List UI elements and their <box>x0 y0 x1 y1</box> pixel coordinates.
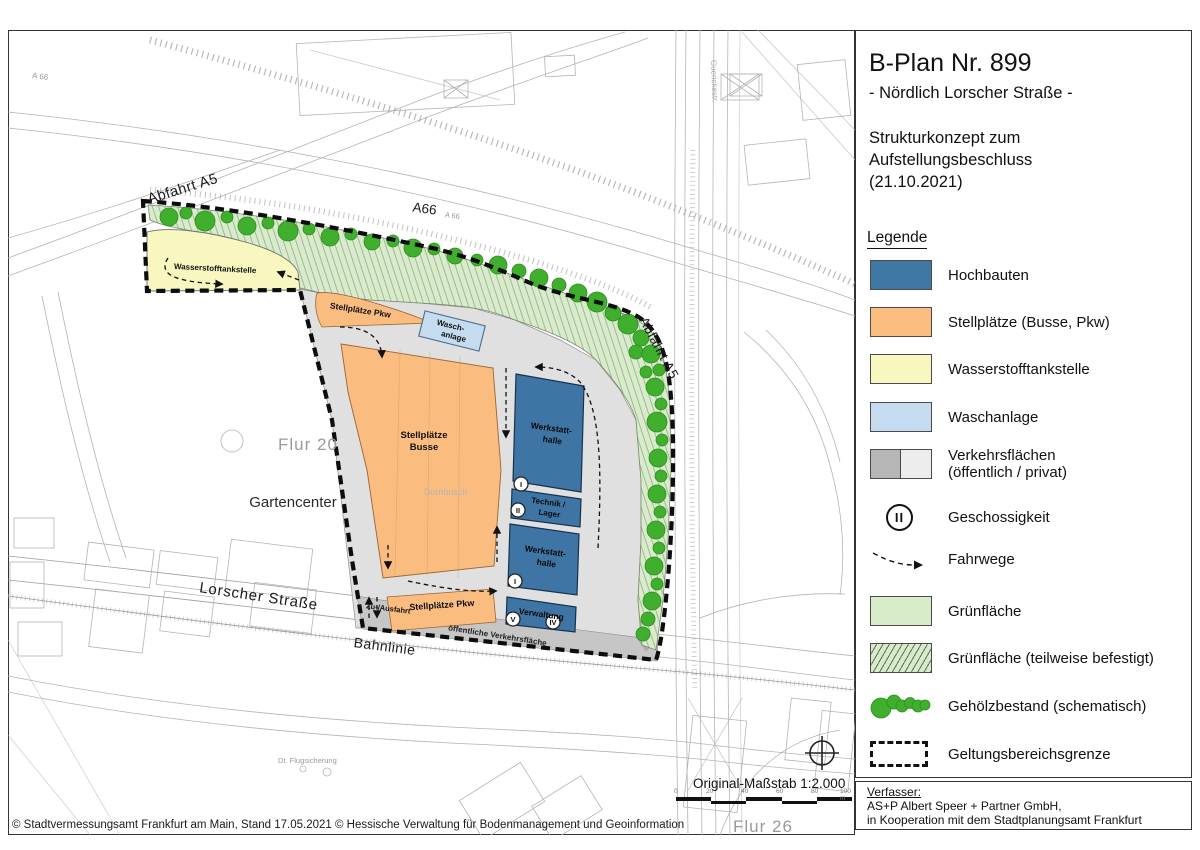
waschanlage-swatch <box>870 402 932 432</box>
legend-item-waschanlage: Waschanlage <box>870 400 1185 434</box>
scale-bar: 0 20 40 60 80 100 m <box>676 797 852 804</box>
plan-sheet: I II I V IV Abfahrt A5 A66 A 66 A 66 Abf… <box>0 0 1200 850</box>
legend-item-label: Geltungsbereichsgrenze <box>948 746 1111 763</box>
label-bahnlinie: Bahnlinie <box>353 634 417 658</box>
legend-item-label: Gehölzbestand (schematisch) <box>948 698 1146 715</box>
plan-description-line: Aufstellungsbeschluss <box>869 151 1032 170</box>
label-gartencenter: Gartencenter <box>249 494 337 511</box>
label-guerickestr: Guerickestr. <box>709 60 719 103</box>
legend-item-fahrwege: Fahrwege <box>870 542 1185 576</box>
label-flugsicherung: Dt. Flugsicherung <box>278 756 337 765</box>
floor-marker-label: V <box>510 615 515 624</box>
label-flur-20: Flur 20 <box>278 435 338 454</box>
label-flur-26: Flur 26 <box>733 817 793 835</box>
label-stellplaetze-busse-2: Busse <box>410 442 439 453</box>
legend-heading: Legende <box>867 229 927 249</box>
wasserstoff-swatch <box>870 354 932 384</box>
author-line: in Kooperation mit dem Stadtplanungsamt … <box>867 813 1142 827</box>
site-plan-map: I II I V IV Abfahrt A5 A66 A 66 A 66 Abf… <box>8 30 855 835</box>
author-line: AS+P Albert Speer + Partner GmbH, <box>867 799 1062 813</box>
verkehrsflaechen-swatch <box>870 449 932 479</box>
building-werkstatthalle-1 <box>513 374 584 492</box>
plan-subtitle: - Nördlich Lorscher Straße - <box>869 84 1073 103</box>
floor-marker-label: I <box>520 480 522 489</box>
plan-description-line: Strukturkonzept zum <box>869 129 1020 148</box>
legend-item-verkehrsflaechen: Verkehrsflächen (öffentlich / privat) <box>870 447 1185 481</box>
legend-item-label: Grünfläche <box>948 603 1021 620</box>
legend-item-hochbauten: Hochbauten <box>870 258 1185 292</box>
floor-marker-label: II <box>516 506 520 515</box>
label-abfahrt-a5-left: Abfahrt A5 <box>146 171 220 208</box>
legend-item-geschossigkeit: II Geschossigkeit <box>870 500 1185 534</box>
legend-item-stellplaetze: Stellplätze (Busse, Pkw) <box>870 305 1185 339</box>
scale-tick: 100 m <box>840 788 852 802</box>
floor-marker-label: I <box>514 577 516 586</box>
fahrweg-arrow-icon <box>870 544 932 574</box>
label-a66: A66 <box>412 199 438 217</box>
plan-description-line: (21.10.2021) <box>869 173 963 192</box>
label-stellplaetze-busse-1: Stellplätze <box>401 430 448 441</box>
gruenflaeche-hatch-swatch <box>870 643 932 673</box>
crosshair-icon <box>805 736 839 770</box>
label-lorscher-strasse: Lorscher Straße <box>198 579 319 613</box>
label-a66-small: A 66 <box>444 210 460 221</box>
boundary-dash-swatch <box>870 741 928 767</box>
copyright-note: © Stadtvermessungsamt Frankfurt am Main,… <box>12 819 684 831</box>
legend-item-geltungsbereichsgrenze: Geltungsbereichsgrenze <box>870 737 1185 771</box>
scale-tick: 0 <box>674 788 678 795</box>
label-dornbusch: Dornbusch <box>424 487 468 497</box>
legend-item-wasserstofftankstelle: Wasserstofftankstelle <box>870 352 1185 386</box>
author-block: Verfasser: AS+P Albert Speer + Partner G… <box>855 781 1192 830</box>
legend-item-gruenflaeche: Grünfläche <box>870 594 1185 628</box>
plan-title: B-Plan Nr. 899 <box>869 49 1032 78</box>
legend-item-label: Grünfläche (teilweise befestigt) <box>948 650 1154 667</box>
legend-panel: B-Plan Nr. 899 - Nördlich Lorscher Straß… <box>855 30 1192 778</box>
scale-tick: 20 <box>706 788 713 795</box>
legend-item-label: Waschanlage <box>948 409 1038 426</box>
hochbauten-swatch <box>870 260 932 290</box>
gruenflaeche-swatch <box>870 596 932 626</box>
author-heading: Verfasser: <box>867 785 921 799</box>
legend-item-gehoelzbestand: Gehölzbestand (schematisch) <box>870 689 1185 723</box>
storey-circle-icon: II <box>886 504 913 531</box>
legend-item-label2: (öffentlich / privat) <box>948 464 1067 481</box>
legend-item-label: Fahrwege <box>948 551 1015 568</box>
scale-label: Original-Maßstab 1:2.000 <box>693 776 845 791</box>
label-a66-far: A 66 <box>32 71 50 82</box>
legend-item-label: Geschossigkeit <box>948 509 1050 526</box>
scale-tick: 60 <box>776 788 783 795</box>
legend-item-label: Hochbauten <box>948 267 1029 284</box>
legend-item-label: Verkehrsflächen <box>948 447 1067 464</box>
scale-tick: 40 <box>741 788 748 795</box>
legend-item-label: Stellplätze (Busse, Pkw) <box>948 314 1110 331</box>
scale-tick: 80 <box>811 788 818 795</box>
legend-item-label: Wasserstofftankstelle <box>948 361 1090 378</box>
stellplaetze-swatch <box>870 307 932 337</box>
legend-item-gruenflaeche-befestigt: Grünfläche (teilweise befestigt) <box>870 641 1185 675</box>
tree-blobs-icon <box>870 691 932 721</box>
